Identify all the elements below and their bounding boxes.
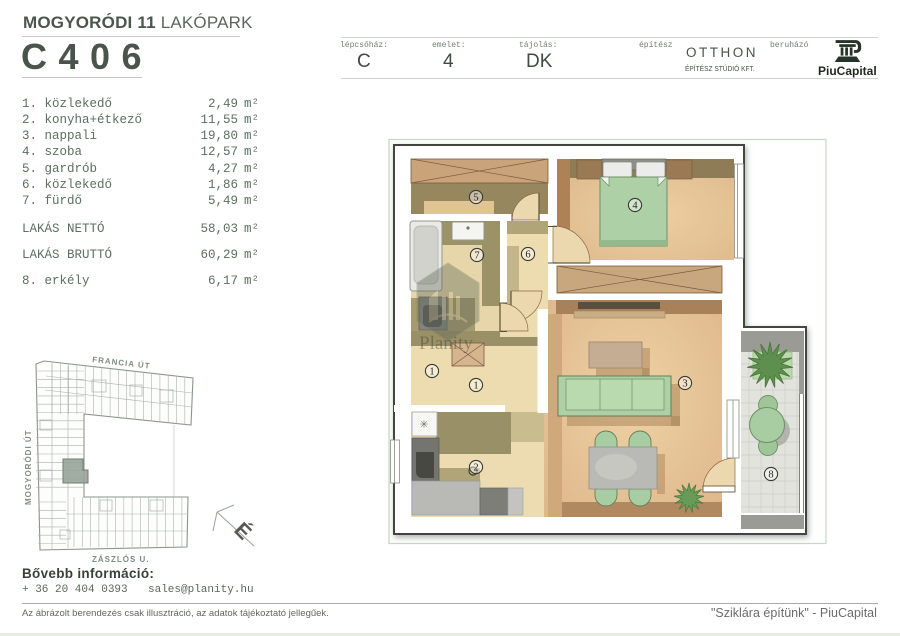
svg-text:É: É — [229, 518, 255, 544]
svg-text:MOGYORÓDI ÚT: MOGYORÓDI ÚT — [24, 429, 33, 505]
svg-text:ZÁSZLÓS U.: ZÁSZLÓS U. — [92, 555, 150, 564]
